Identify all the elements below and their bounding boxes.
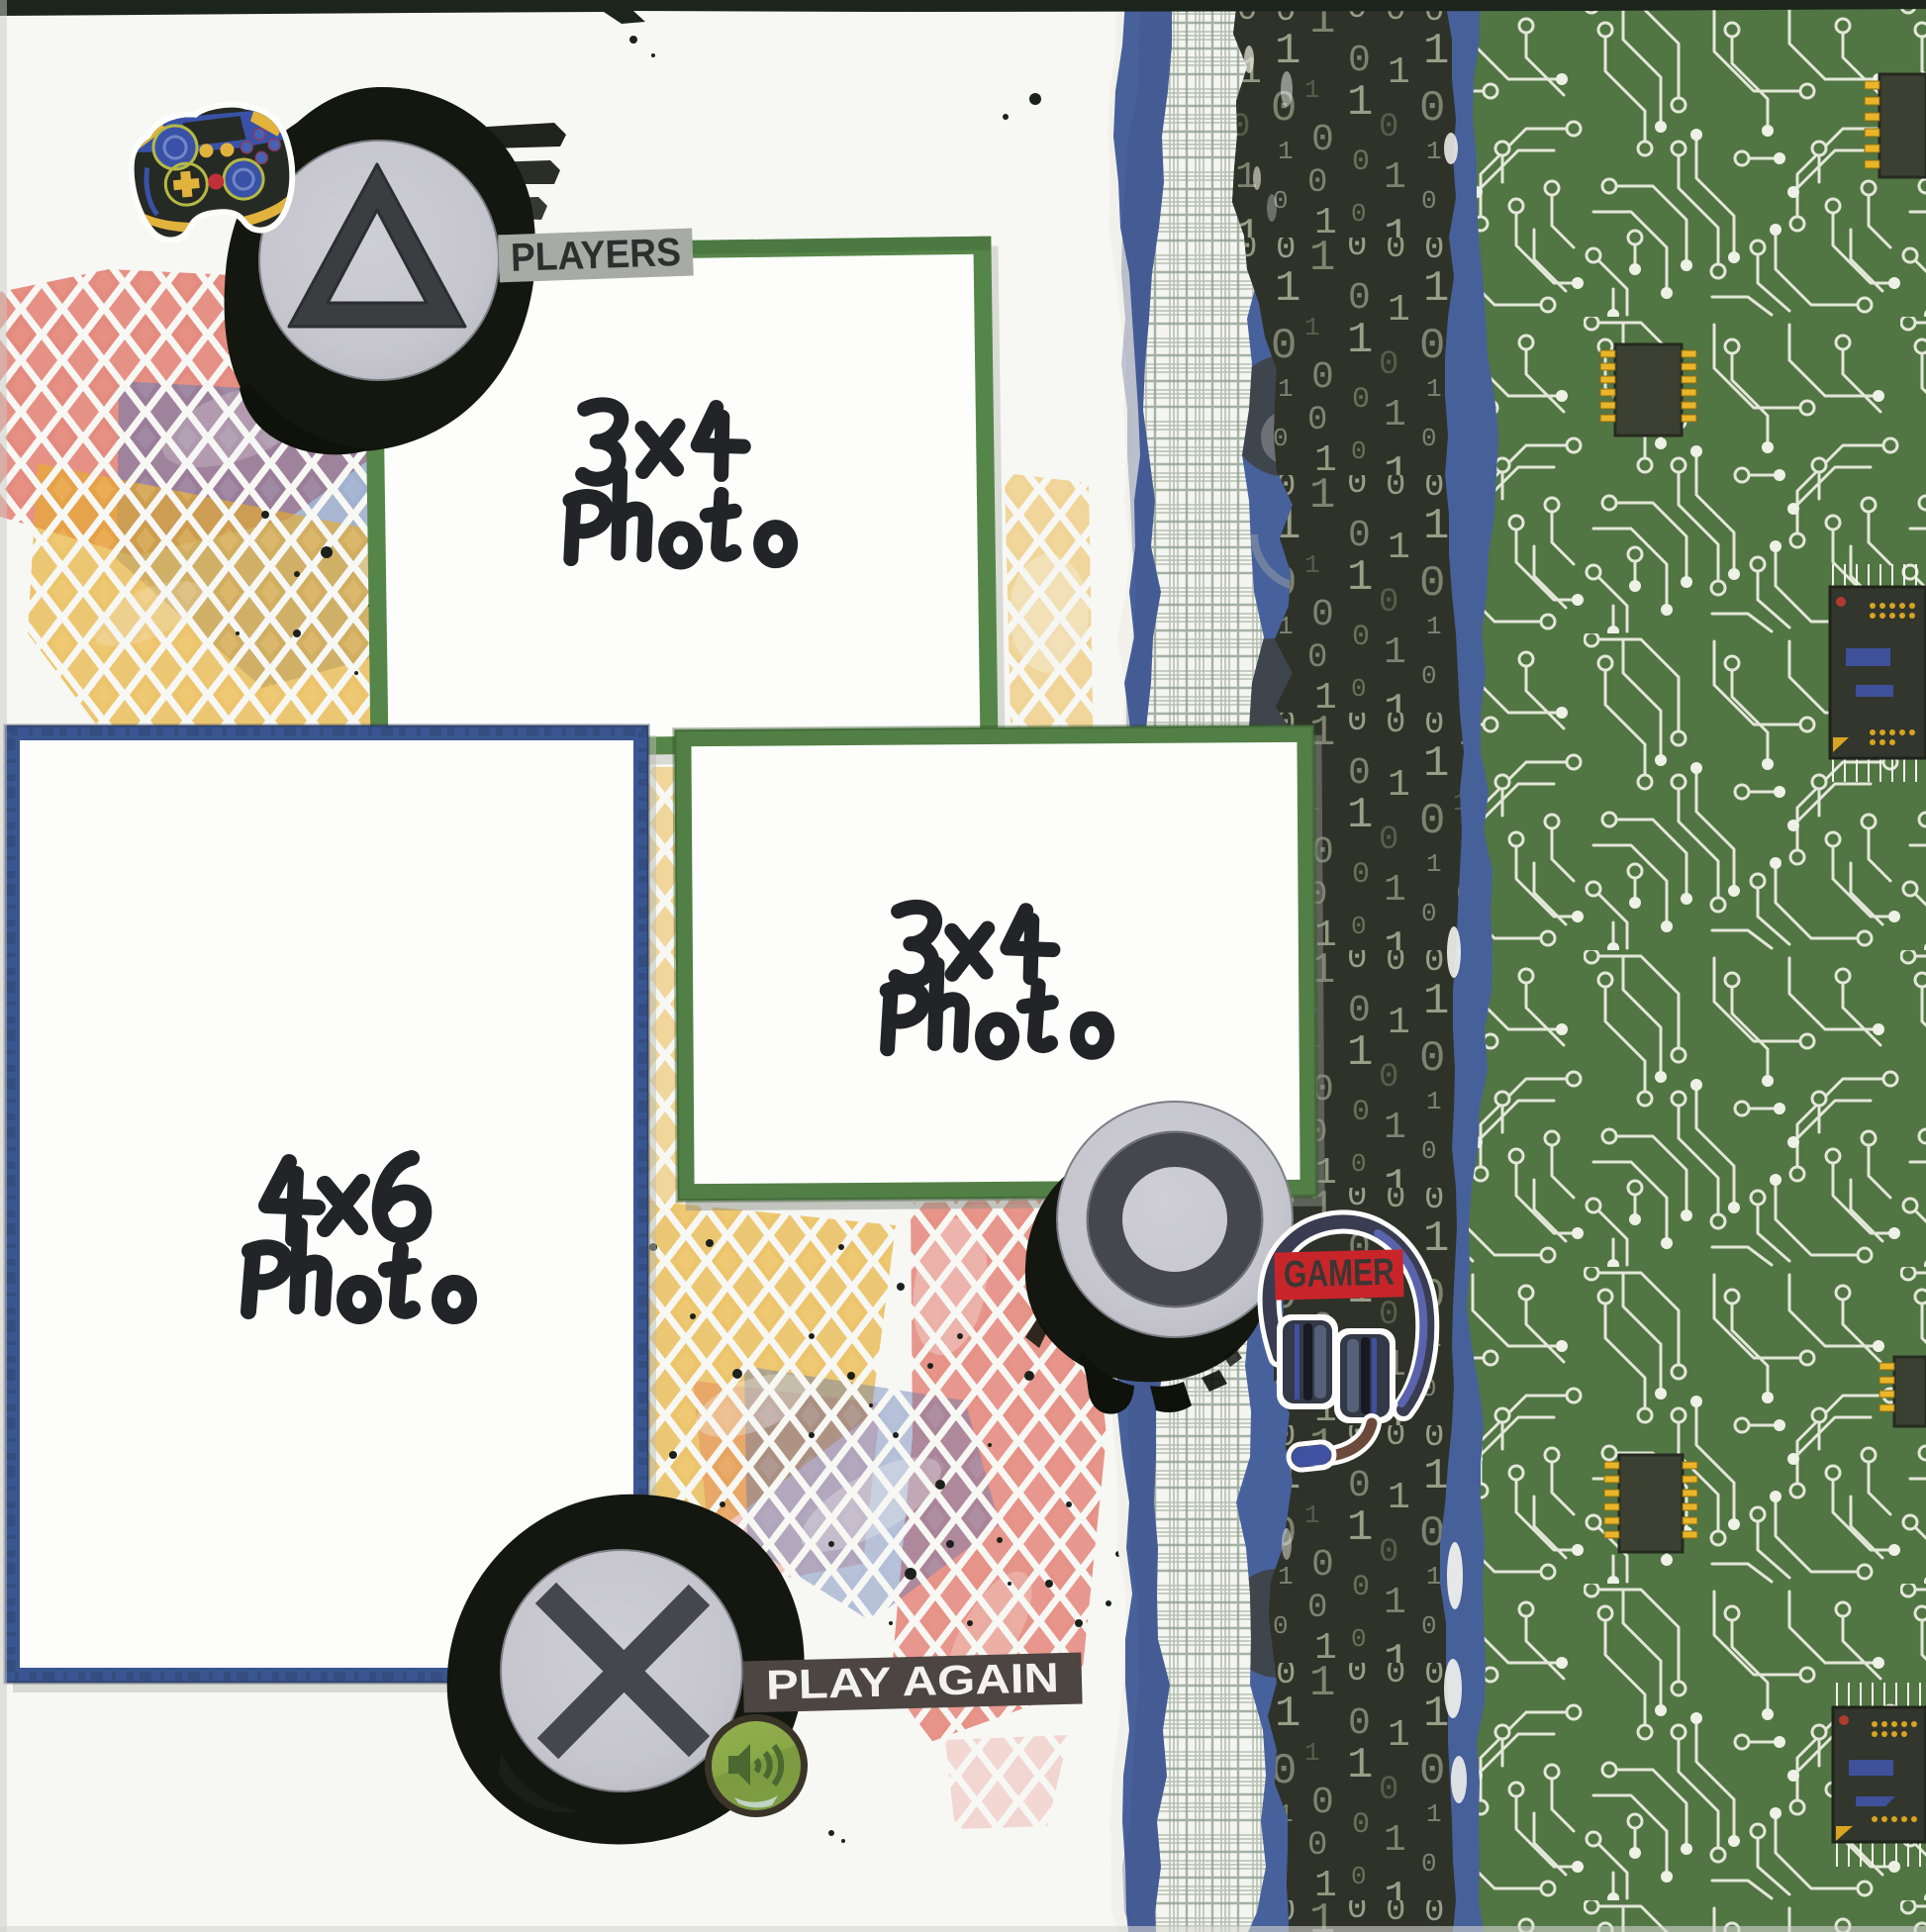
svg-text:GAMER: GAMER [1283, 1252, 1395, 1297]
svg-text:PLAY AGAIN: PLAY AGAIN [765, 1654, 1059, 1708]
svg-text:PLAYERS: PLAYERS [510, 231, 681, 280]
